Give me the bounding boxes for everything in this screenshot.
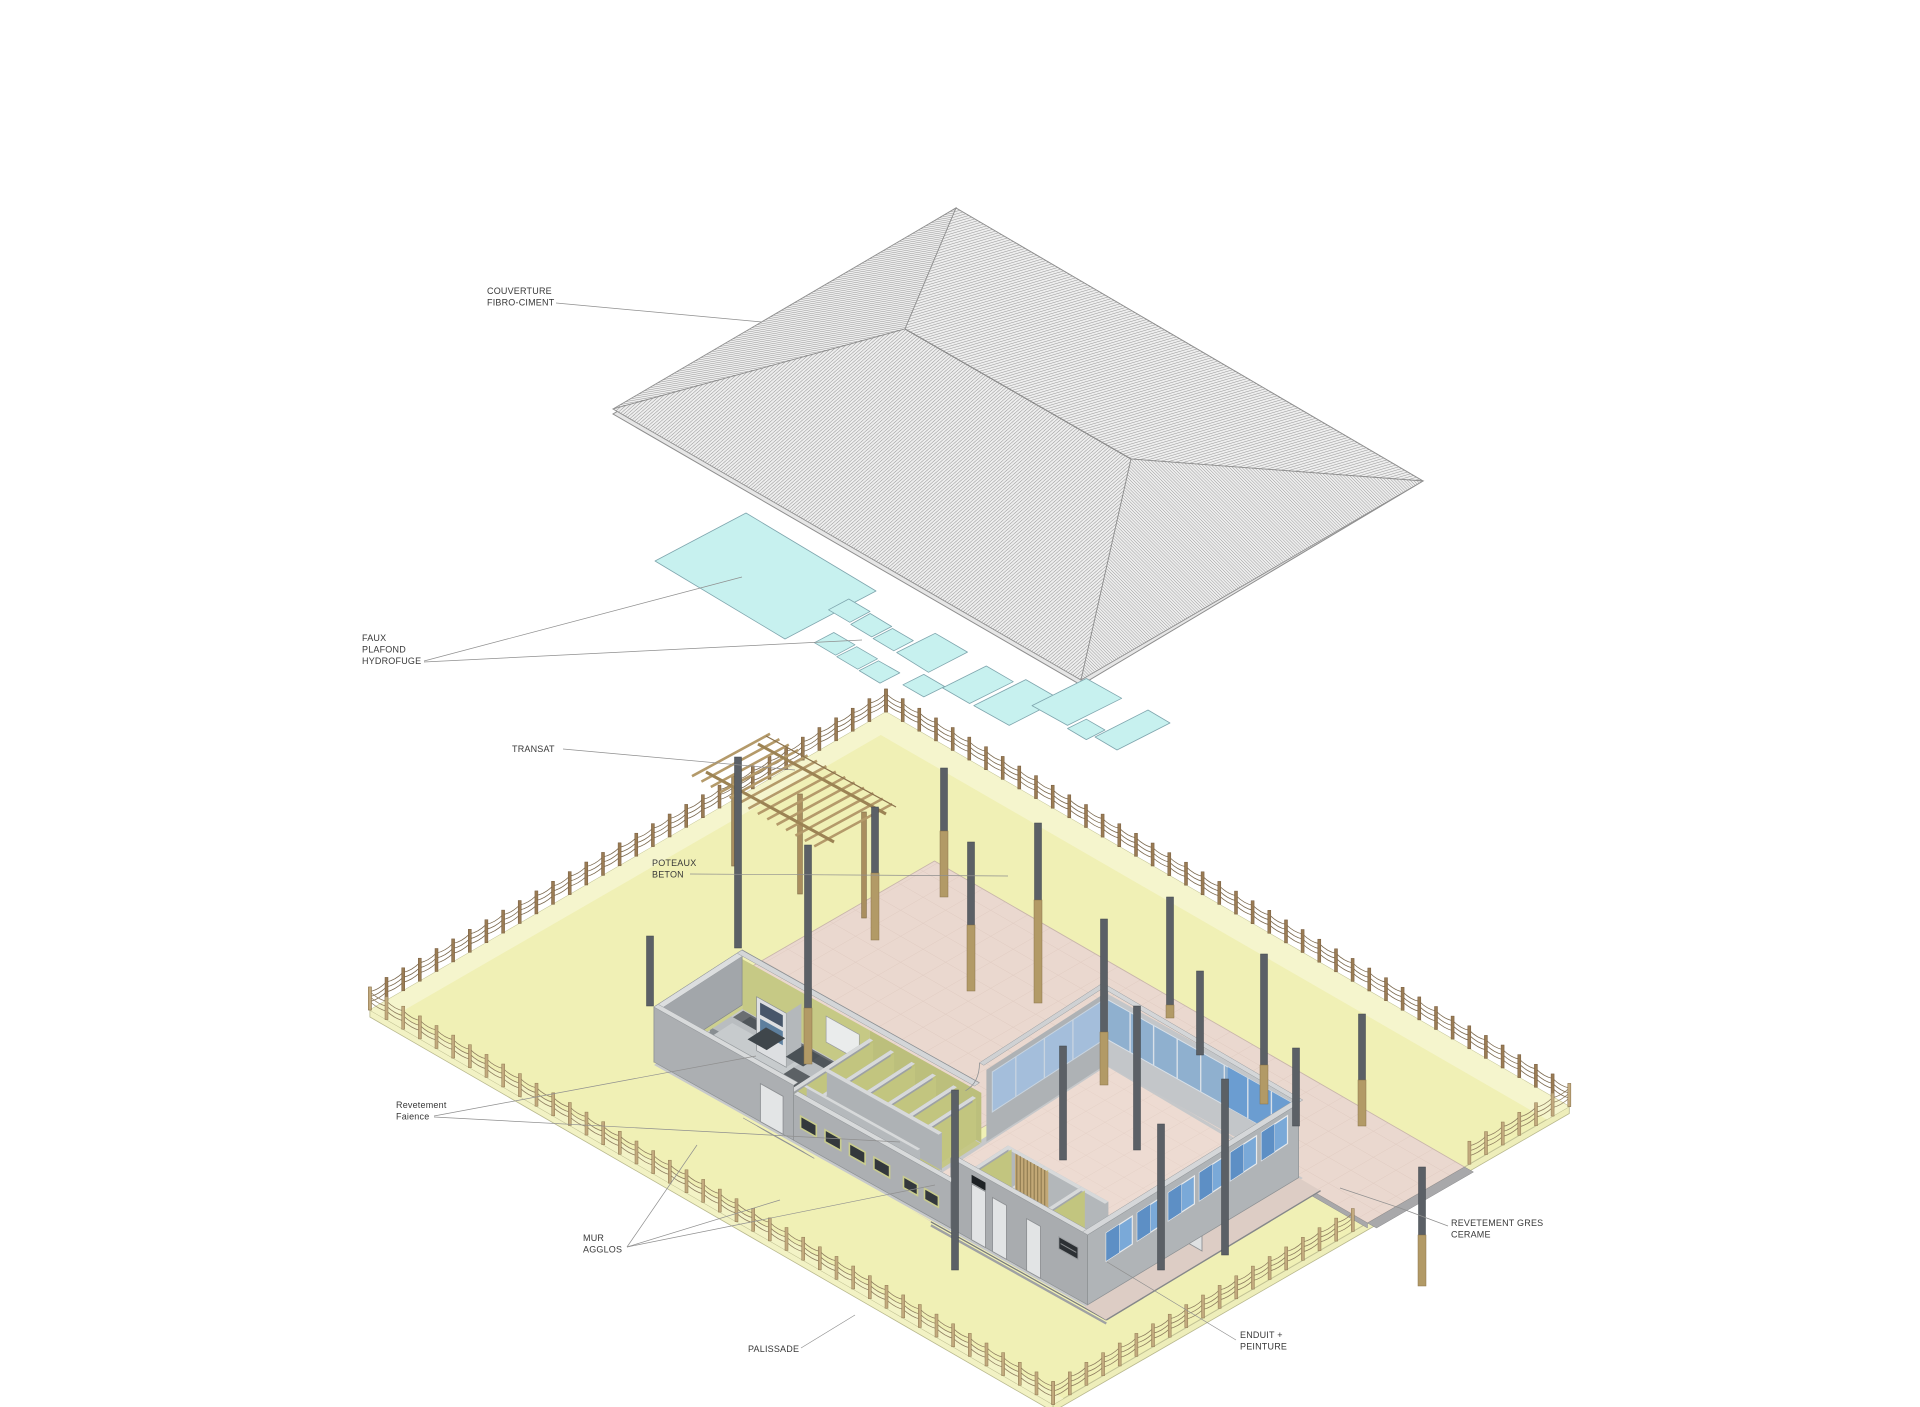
svg-text:ENDUIT +PEINTURE: ENDUIT +PEINTURE [1240,1330,1287,1352]
svg-text:COUVERTUREFIBRO-CIMENT: COUVERTUREFIBRO-CIMENT [487,286,555,308]
svg-text:TRANSAT: TRANSAT [512,744,555,754]
svg-text:PALISSADE: PALISSADE [748,1344,799,1354]
